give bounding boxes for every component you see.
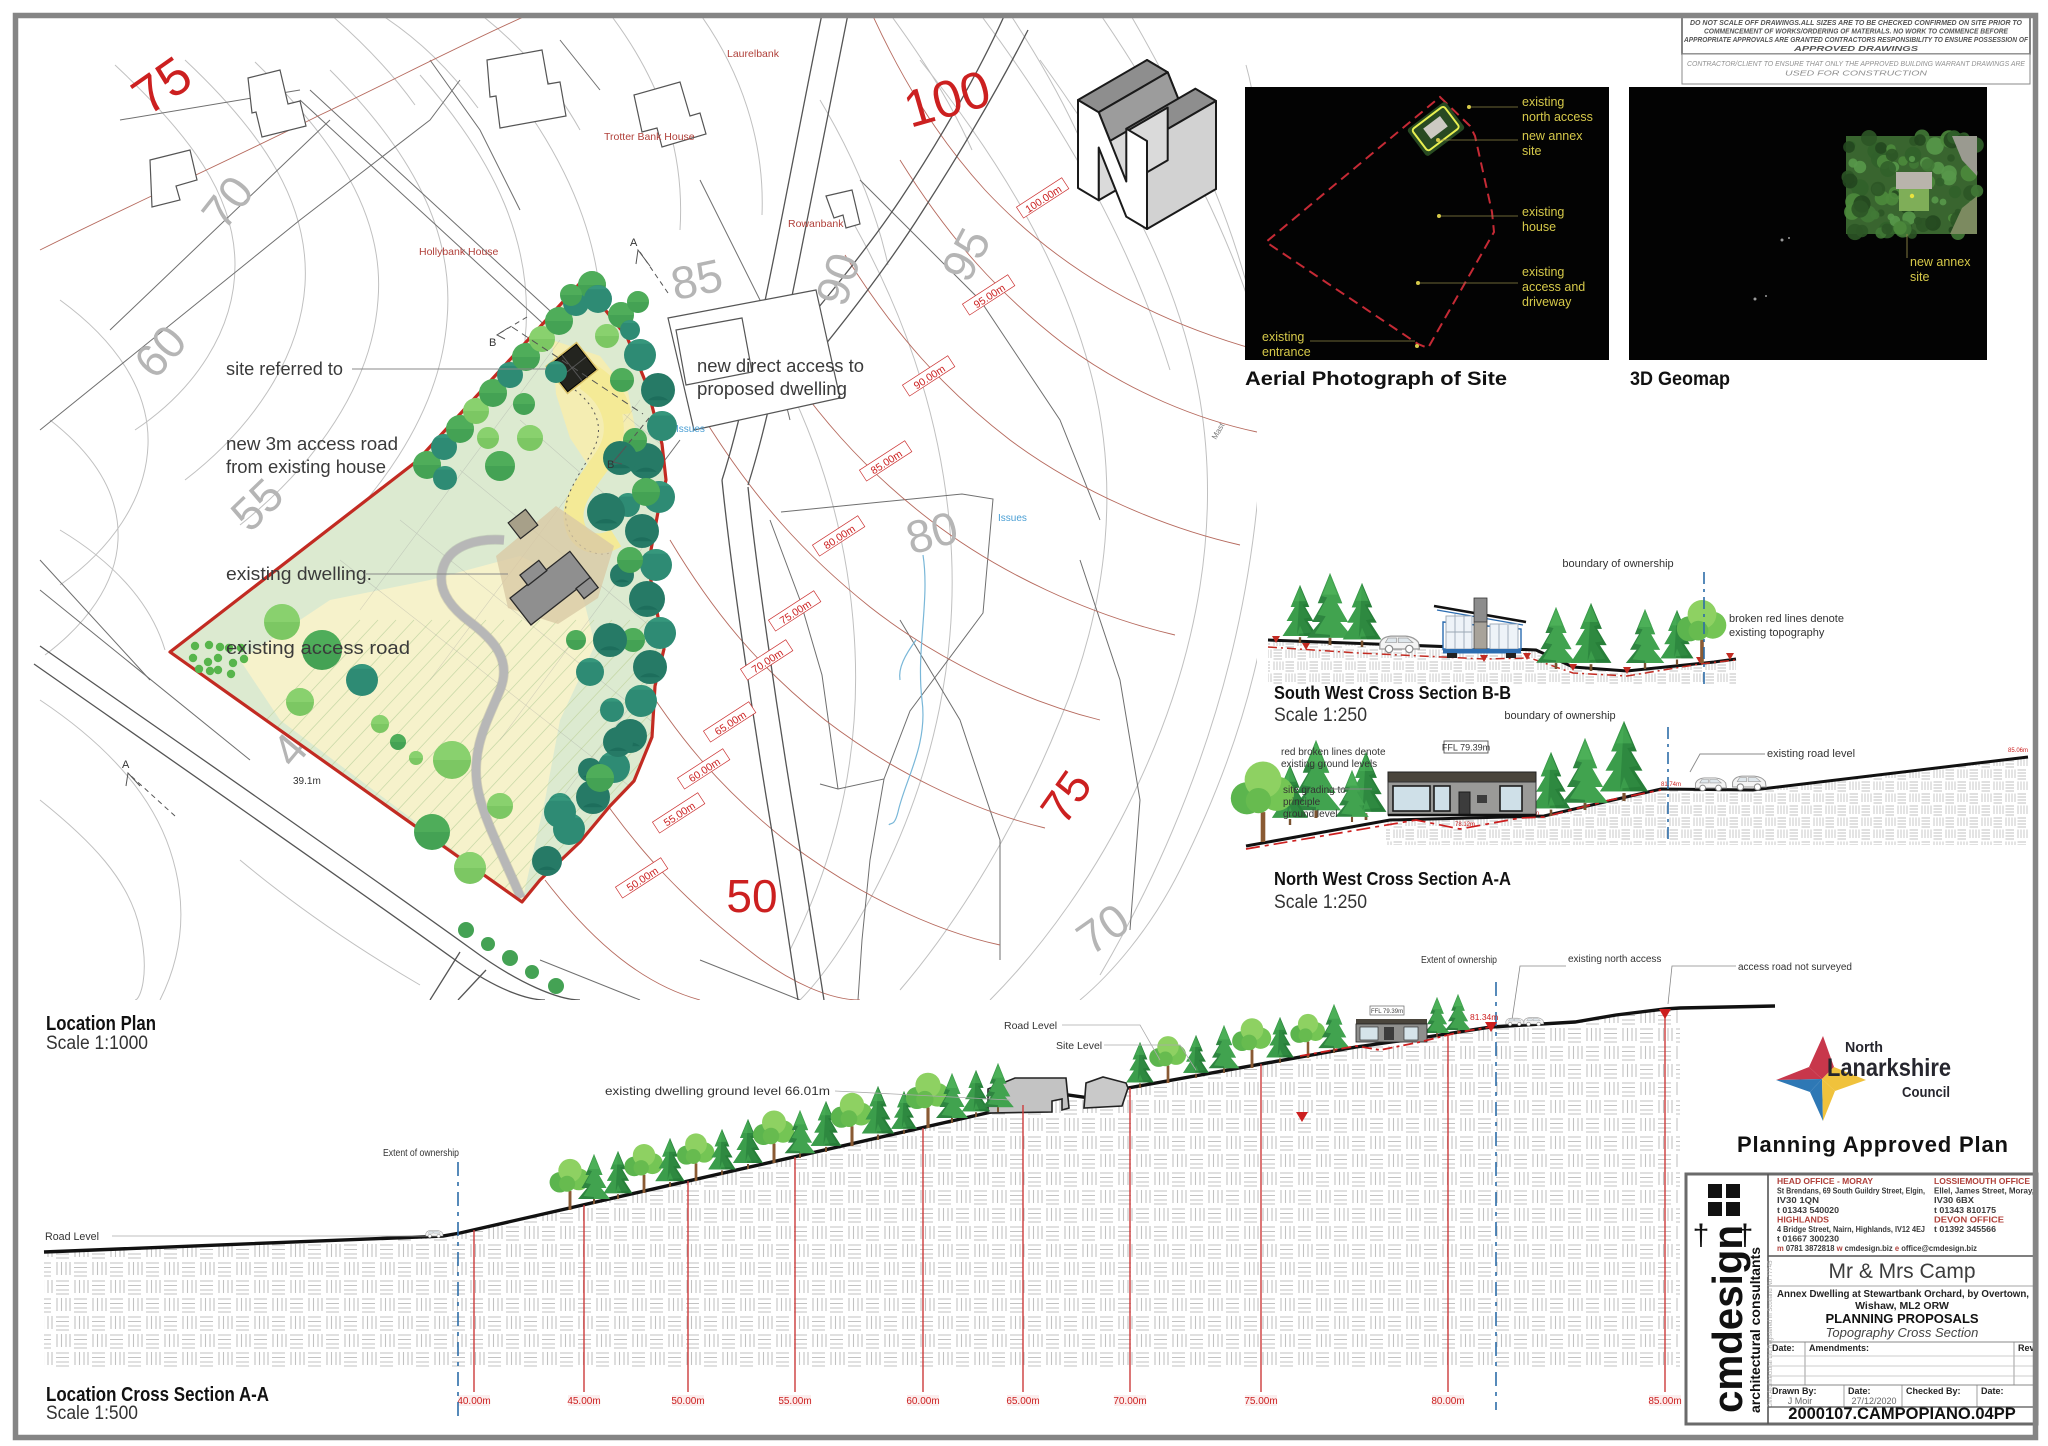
svg-text:entrance: entrance — [1262, 345, 1311, 359]
svg-text:Road Level: Road Level — [1004, 1020, 1057, 1032]
svg-text:4 Bridge Street, Nairn, Highla: 4 Bridge Street, Nairn, Highlands, IV12 … — [1777, 1224, 1925, 1234]
svg-text:Planning Approved Plan: Planning Approved Plan — [1737, 1132, 2009, 1157]
svg-text:architectural consultants: architectural consultants — [1747, 1247, 1763, 1413]
svg-text:site: site — [1910, 270, 1930, 284]
svg-text:Topography Cross Section: Topography Cross Section — [1826, 1325, 1979, 1340]
svg-text:Amendments:: Amendments: — [1809, 1343, 1869, 1353]
svg-text:existing dwelling ground level: existing dwelling ground level 66.01m — [605, 1084, 830, 1098]
svg-text:principle: principle — [1283, 797, 1321, 808]
svg-text:m 0781 3872818 w cmdesign.biz: m 0781 3872818 w cmdesign.biz e office@c… — [1777, 1243, 1977, 1253]
svg-text:site: site — [1522, 144, 1542, 158]
svg-text:Trotter Bank House: Trotter Bank House — [604, 131, 695, 143]
svg-text:existing: existing — [1522, 265, 1564, 279]
svg-text:Road Level: Road Level — [45, 1231, 99, 1243]
svg-text:t 01392 345566: t 01392 345566 — [1934, 1224, 1996, 1234]
svg-text:new 3m access road: new 3m access road — [226, 434, 398, 454]
svg-text:75.00m: 75.00m — [1244, 1396, 1277, 1407]
svg-text:Lanarkshire: Lanarkshire — [1827, 1054, 1951, 1082]
svg-text:existing ground levels: existing ground levels — [1281, 759, 1377, 770]
svg-text:Checked By:: Checked By: — [1906, 1386, 1961, 1396]
svg-text:Council: Council — [1902, 1084, 1950, 1101]
svg-text:81.74m: 81.74m — [1661, 782, 1681, 788]
svg-text:39.1m: 39.1m — [293, 776, 321, 787]
svg-text:Extent of ownership: Extent of ownership — [383, 1147, 459, 1159]
svg-text:HEAD OFFICE - MORAY: HEAD OFFICE - MORAY — [1777, 1176, 1873, 1186]
svg-text:Aerial Photograph of Site: Aerial Photograph of Site — [1245, 368, 1507, 390]
svg-text:house: house — [1522, 220, 1556, 234]
svg-text:Mr & Mrs Camp: Mr & Mrs Camp — [1829, 1260, 1976, 1283]
svg-text:site referred to: site referred to — [226, 359, 343, 379]
svg-text:80.00m: 80.00m — [1431, 1396, 1464, 1407]
svg-text:South West Cross Section B-B: South West Cross Section B-B — [1274, 682, 1511, 703]
svg-text:60.00m: 60.00m — [906, 1396, 939, 1407]
svg-text:A: A — [630, 237, 638, 249]
svg-text:FFL 79.39m: FFL 79.39m — [1371, 1009, 1403, 1015]
svg-text:FFL 79.39m: FFL 79.39m — [1442, 743, 1490, 753]
svg-text:proposed dwelling: proposed dwelling — [697, 379, 847, 399]
svg-text:new direct access to: new direct access to — [697, 356, 864, 376]
svg-text:existing road level: existing road level — [1767, 748, 1855, 760]
svg-text:85: 85 — [666, 249, 727, 311]
svg-text:St Brendans, 69 South Guildry: St Brendans, 69 South Guildry Street, El… — [1777, 1186, 1925, 1196]
svg-text:access road not surveyed: access road not surveyed — [1738, 962, 1852, 973]
svg-text:Site Level: Site Level — [1056, 1040, 1102, 1052]
svg-text:45.00m: 45.00m — [567, 1396, 600, 1407]
svg-text:65.00m: 65.00m — [1006, 1396, 1039, 1407]
svg-text:50: 50 — [726, 870, 777, 922]
svg-text:Scale 1:500: Scale 1:500 — [46, 1403, 138, 1424]
svg-text:Scale 1:1000: Scale 1:1000 — [46, 1033, 148, 1054]
svg-text:existing access road: existing access road — [226, 638, 410, 658]
svg-text:Date:: Date: — [1848, 1386, 1871, 1396]
svg-text:Hollybank House: Hollybank House — [419, 246, 499, 258]
svg-text:Scale 1:250: Scale 1:250 — [1274, 892, 1367, 913]
svg-text:100: 100 — [898, 60, 997, 140]
svg-text:B: B — [607, 459, 614, 471]
svg-text:PLANNING PROPOSALS: PLANNING PROPOSALS — [1825, 1311, 1978, 1326]
svg-text:Scale 1:250: Scale 1:250 — [1274, 705, 1367, 726]
svg-text:North West Cross Section A-A: North West Cross Section A-A — [1274, 868, 1511, 889]
svg-text:55.00m: 55.00m — [778, 1396, 811, 1407]
svg-text:cmdesign: cmdesign — [1704, 1225, 1751, 1413]
svg-text:70.00m: 70.00m — [1113, 1396, 1146, 1407]
svg-text:existing: existing — [1522, 95, 1564, 109]
svg-text:40.00m: 40.00m — [457, 1396, 490, 1407]
svg-text:HIGHLANDS: HIGHLANDS — [1777, 1214, 1829, 1224]
svg-text:red broken lines denote: red broken lines denote — [1281, 747, 1386, 758]
svg-text:75: 75 — [1030, 761, 1102, 833]
svg-text:from existing house: from existing house — [226, 457, 386, 477]
svg-text:broken red lines denote: broken red lines denote — [1729, 613, 1844, 625]
svg-text:existing topography: existing topography — [1729, 627, 1825, 639]
svg-text:3D Geomap: 3D Geomap — [1630, 368, 1730, 390]
svg-text:existing: existing — [1262, 330, 1304, 344]
svg-text:new annex: new annex — [1522, 129, 1583, 143]
svg-text:ground level: ground level — [1283, 809, 1337, 820]
svg-text:Extent of ownership: Extent of ownership — [1421, 954, 1497, 966]
svg-text:boundary of ownership: boundary of ownership — [1562, 558, 1673, 570]
svg-text:Ellel, James Street, Moray,: Ellel, James Street, Moray, — [1934, 1186, 2034, 1196]
svg-text:existing: existing — [1522, 205, 1564, 219]
svg-text:Date:: Date: — [1772, 1343, 1795, 1353]
svg-text:70: 70 — [1067, 893, 1139, 965]
svg-text:Laurelbank: Laurelbank — [727, 48, 780, 60]
svg-text:85.06m: 85.06m — [2008, 748, 2028, 754]
svg-text:north access: north access — [1522, 110, 1593, 124]
svg-text:access and: access and — [1522, 280, 1585, 294]
svg-text:IV30 6BX: IV30 6BX — [1934, 1195, 1974, 1205]
svg-text:Location Plan: Location Plan — [46, 1012, 156, 1035]
svg-text:new annex: new annex — [1910, 255, 1971, 269]
svg-text:70: 70 — [191, 166, 263, 238]
svg-text:LOSSIEMOUTH OFFICE: LOSSIEMOUTH OFFICE — [1934, 1176, 2030, 1186]
svg-text:78.12m: 78.12m — [1455, 822, 1475, 828]
svg-text:DEVON OFFICE: DEVON OFFICE — [1934, 1214, 2004, 1224]
svg-text:driveway: driveway — [1522, 295, 1572, 309]
svg-text:Rowanbank: Rowanbank — [788, 218, 844, 230]
svg-text:boundary of ownership: boundary of ownership — [1504, 710, 1615, 722]
svg-text:A: A — [122, 759, 130, 771]
svg-text:t 01343 810175: t 01343 810175 — [1934, 1205, 1996, 1215]
svg-text:75: 75 — [122, 46, 203, 127]
svg-text:t 01343 540020: t 01343 540020 — [1777, 1205, 1839, 1215]
svg-text:Date:: Date: — [1981, 1386, 2004, 1396]
svg-text:APPROVED DRAWINGS: APPROVED DRAWINGS — [1792, 44, 1918, 53]
svg-text:85.00m: 85.00m — [1648, 1396, 1681, 1407]
svg-text:60: 60 — [124, 315, 197, 388]
svg-text:existing north access: existing north access — [1568, 954, 1661, 965]
svg-text:IV30 1QN: IV30 1QN — [1777, 1195, 1819, 1205]
svg-text:81.34m: 81.34m — [1470, 1012, 1498, 1022]
svg-text:2000107.CAMPOPIANO.04PP: 2000107.CAMPOPIANO.04PP — [1788, 1405, 2015, 1423]
svg-text:Issues: Issues — [676, 424, 705, 435]
svg-text:CONTRACTOR/CLIENT TO ENSURE TH: CONTRACTOR/CLIENT TO ENSURE THAT ONLY TH… — [1687, 59, 2025, 68]
svg-text:80: 80 — [900, 501, 963, 564]
svg-text:Annex Dwelling at Stewartbank: Annex Dwelling at Stewartbank Orchard, b… — [1777, 1288, 2029, 1300]
svg-text:Issues: Issues — [998, 513, 1027, 524]
svg-text:B: B — [489, 337, 496, 349]
svg-text:site grading to: site grading to — [1283, 785, 1346, 796]
svg-text:55: 55 — [220, 468, 293, 541]
svg-text:50.00m: 50.00m — [671, 1396, 704, 1407]
svg-text:USED FOR CONSTRUCTION: USED FOR CONSTRUCTION — [1785, 68, 1928, 77]
svg-text:existing dwelling.: existing dwelling. — [226, 564, 372, 584]
svg-text:Drawn By:: Drawn By: — [1772, 1386, 1817, 1396]
